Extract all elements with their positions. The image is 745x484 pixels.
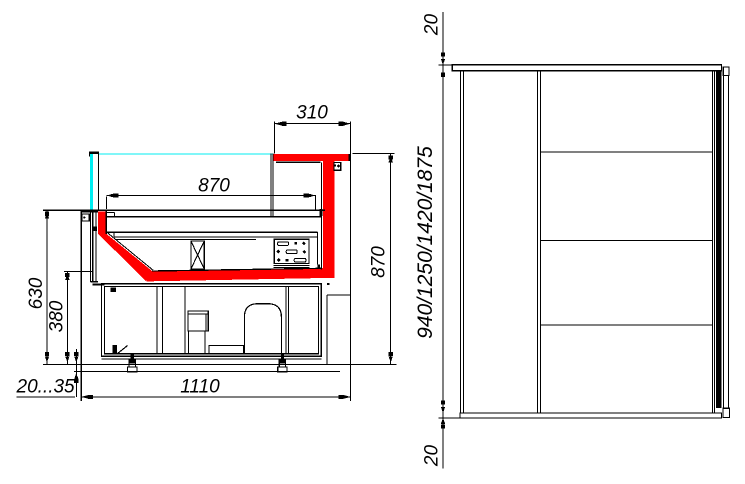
svg-text:310: 310	[296, 103, 328, 124]
svg-text:940/1250/1420/1875: 940/1250/1420/1875	[414, 146, 437, 339]
svg-text:1110: 1110	[180, 377, 220, 398]
svg-text:20...35: 20...35	[16, 377, 76, 398]
svg-text:380: 380	[47, 300, 68, 332]
svg-text:870: 870	[198, 176, 230, 197]
svg-text:20: 20	[422, 14, 443, 37]
svg-text:20: 20	[422, 445, 443, 468]
svg-text:870: 870	[369, 246, 390, 278]
svg-text:630: 630	[26, 277, 47, 309]
